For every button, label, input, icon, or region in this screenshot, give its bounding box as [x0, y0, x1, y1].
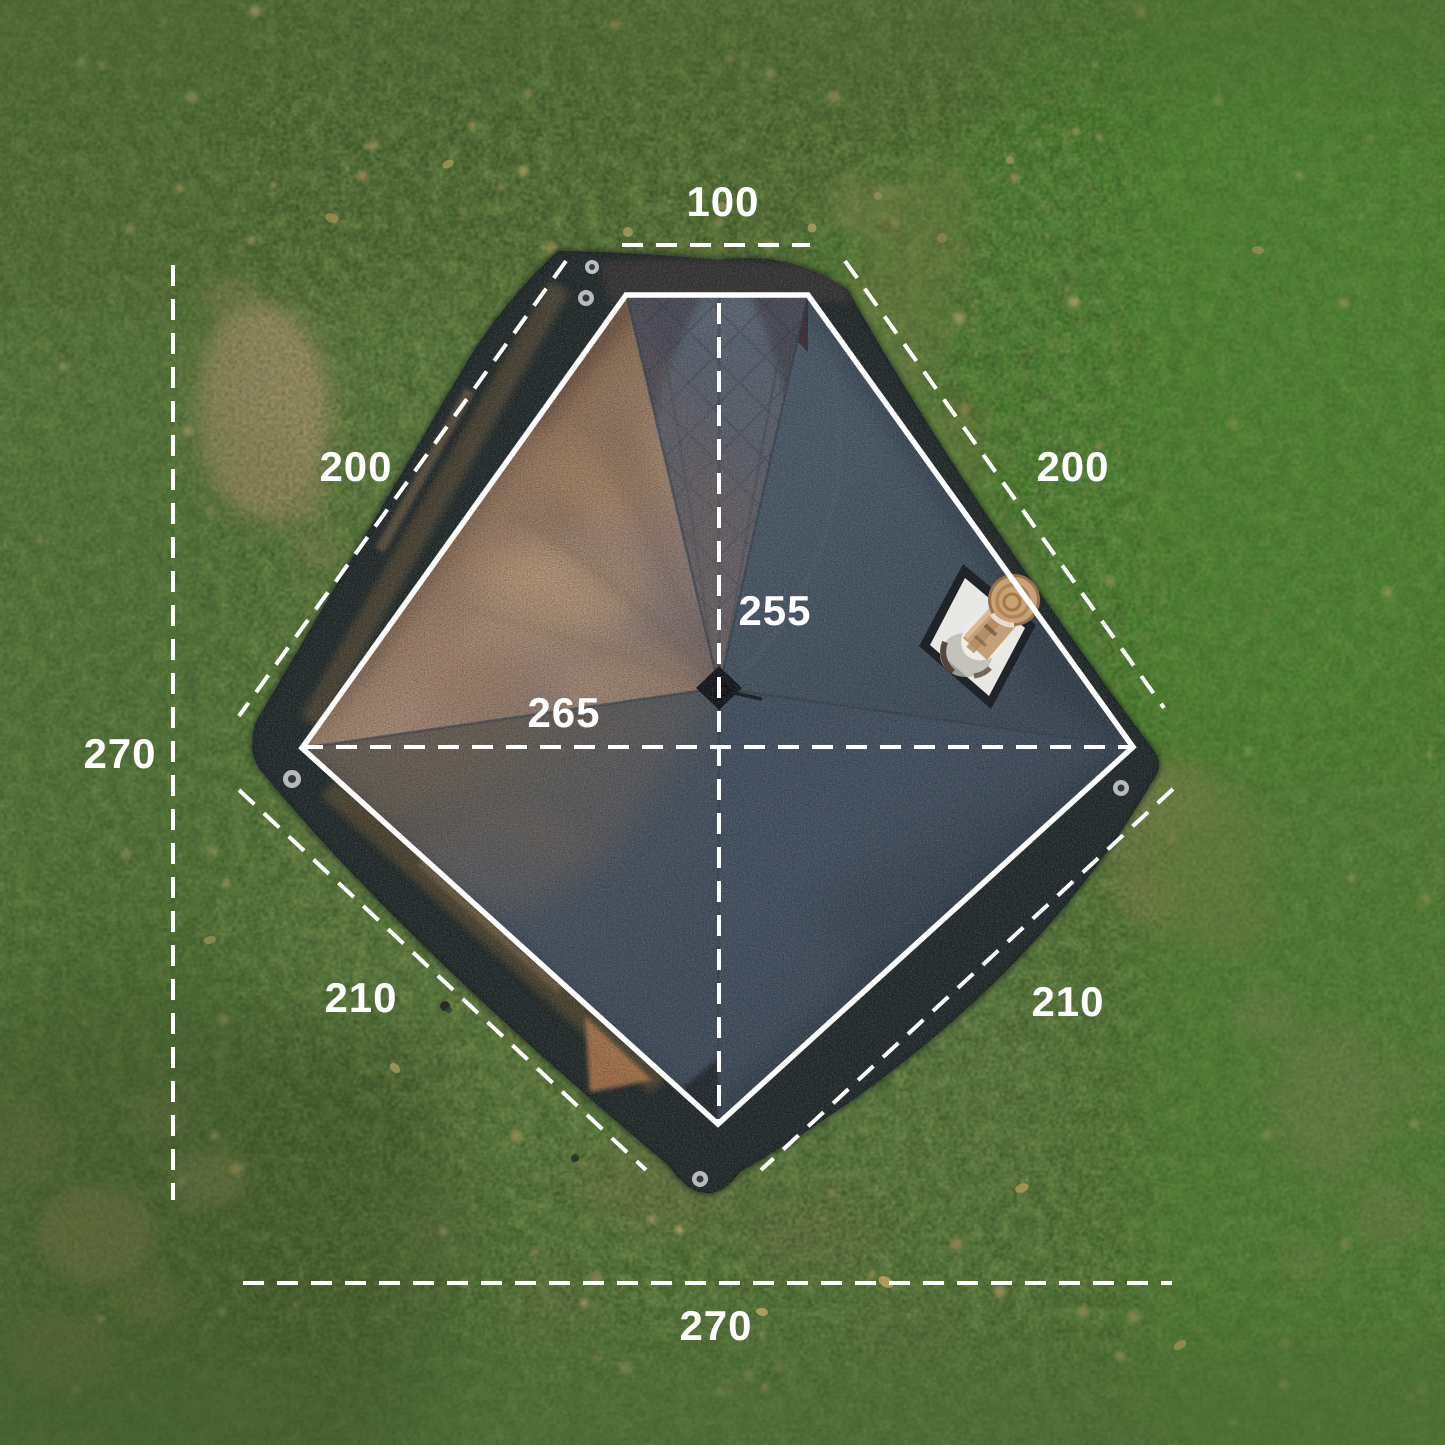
- svg-text:100: 100: [686, 178, 759, 225]
- svg-text:255: 255: [738, 587, 811, 634]
- svg-text:210: 210: [1031, 978, 1104, 1025]
- svg-text:210: 210: [324, 974, 397, 1021]
- svg-text:200: 200: [1036, 443, 1109, 490]
- svg-text:265: 265: [527, 689, 600, 736]
- svg-text:270: 270: [83, 730, 156, 777]
- svg-text:200: 200: [319, 443, 392, 490]
- svg-text:270: 270: [679, 1302, 752, 1349]
